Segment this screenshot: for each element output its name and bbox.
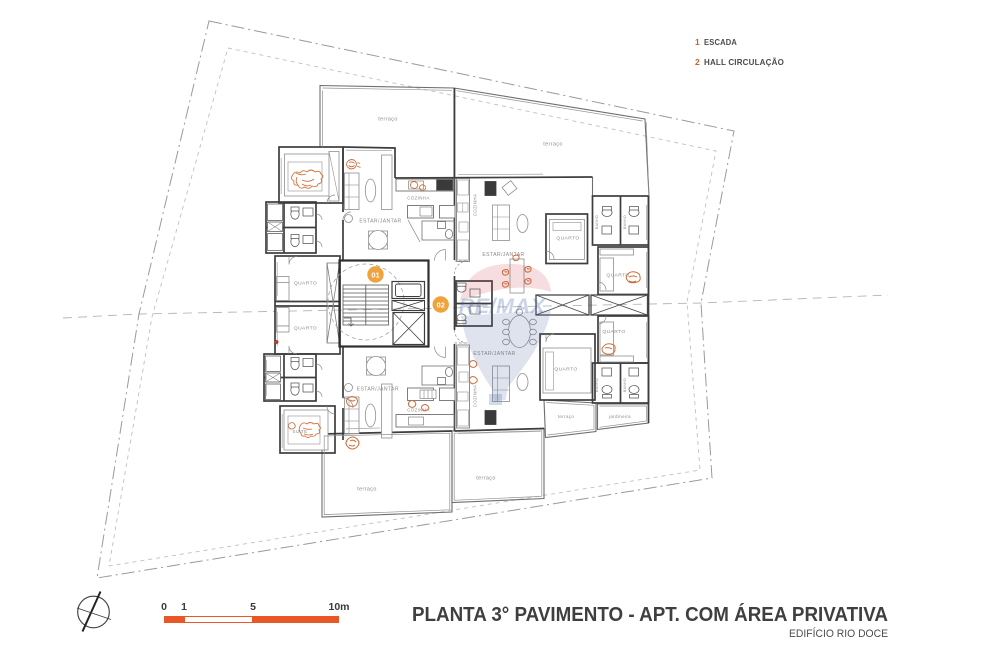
svg-text:BANHO: BANHO <box>595 378 599 392</box>
svg-text:terraço: terraço <box>543 142 563 148</box>
svg-text:01: 01 <box>371 271 379 280</box>
svg-text:2: 2 <box>695 57 700 67</box>
svg-text:BANHO: BANHO <box>623 378 627 392</box>
svg-text:10m: 10m <box>328 601 349 613</box>
svg-text:1: 1 <box>181 601 187 613</box>
svg-text:COZINHA: COZINHA <box>473 194 478 217</box>
svg-text:PLANTA 3° PAVIMENTO - APT. COM: PLANTA 3° PAVIMENTO - APT. COM ÁREA PRIV… <box>412 603 888 626</box>
svg-text:terraço: terraço <box>357 487 377 493</box>
svg-text:0: 0 <box>161 601 167 613</box>
svg-text:terraço: terraço <box>476 476 496 482</box>
svg-text:EDIFÍCIO RIO DOCE: EDIFÍCIO RIO DOCE <box>789 627 888 640</box>
svg-text:terraço: terraço <box>558 414 575 419</box>
svg-text:ESTAR/JANTAR: ESTAR/JANTAR <box>357 387 399 393</box>
svg-text:BANHO: BANHO <box>595 215 599 229</box>
svg-text:COZINHA: COZINHA <box>407 196 430 201</box>
svg-text:ESCADA: ESCADA <box>704 37 737 47</box>
svg-text:ESTAR/JANTAR: ESTAR/JANTAR <box>359 219 401 225</box>
svg-text:QUARTO: QUARTO <box>294 281 317 287</box>
svg-text:jardineira: jardineira <box>608 414 631 419</box>
svg-text:QUARTO: QUARTO <box>556 236 579 242</box>
svg-text:COZINHA: COZINHA <box>473 385 478 408</box>
svg-text:QUARTO: QUARTO <box>294 326 317 332</box>
svg-text:02: 02 <box>437 301 445 310</box>
svg-text:terraço: terraço <box>378 117 398 123</box>
svg-text:BANHO: BANHO <box>623 215 627 229</box>
svg-text:HALL CIRCULAÇÃO: HALL CIRCULAÇÃO <box>704 57 784 67</box>
svg-text:5: 5 <box>250 601 256 613</box>
svg-text:1: 1 <box>695 37 700 47</box>
svg-text:QUARTO: QUARTO <box>602 329 625 335</box>
svg-text:QUARTO: QUARTO <box>554 367 577 373</box>
